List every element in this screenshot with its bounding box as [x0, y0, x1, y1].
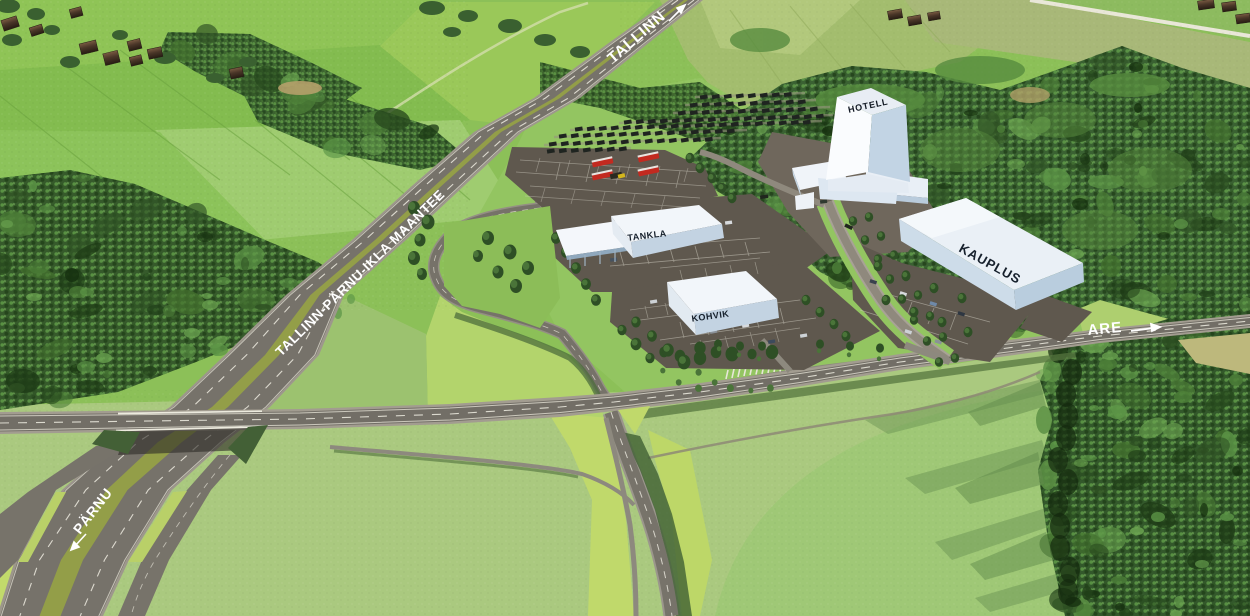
svg-text:ARE: ARE — [1087, 319, 1123, 339]
